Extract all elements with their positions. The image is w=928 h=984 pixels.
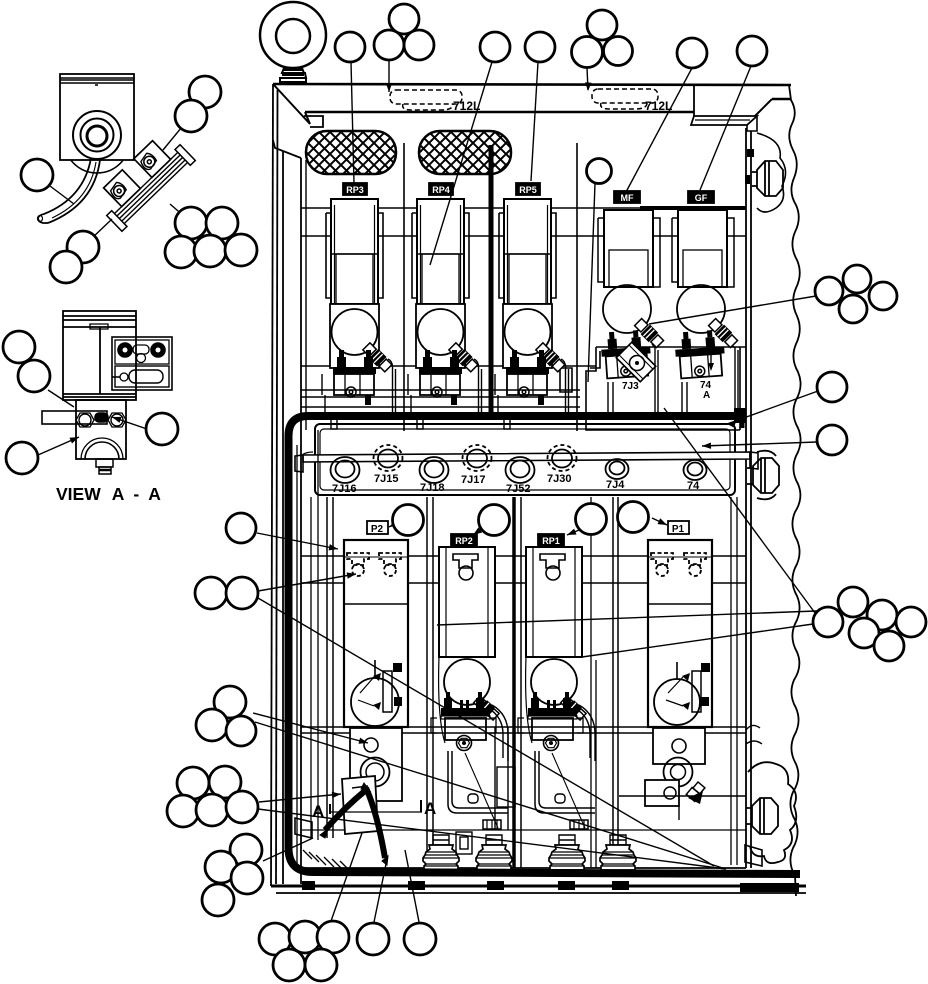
svg-text:7J18: 7J18 [420, 482, 444, 494]
svg-text:712L: 712L [645, 99, 672, 113]
svg-text:RP3: RP3 [346, 185, 364, 195]
svg-text:VIEWA-A: VIEWA-A [56, 484, 161, 504]
svg-text:RP2: RP2 [455, 536, 473, 546]
svg-text:A: A [703, 390, 710, 401]
svg-text:RP1: RP1 [542, 536, 560, 546]
svg-text:RP4: RP4 [432, 185, 450, 195]
svg-text:7J30: 7J30 [547, 473, 571, 485]
svg-text:GF: GF [695, 193, 708, 203]
svg-text:7J4: 7J4 [606, 479, 625, 491]
svg-text:7J16: 7J16 [332, 483, 356, 495]
svg-text:RP5: RP5 [519, 185, 537, 195]
svg-text:7J52: 7J52 [506, 483, 530, 495]
svg-text:P2: P2 [371, 524, 384, 535]
svg-text:P1: P1 [672, 524, 685, 535]
svg-text:74: 74 [687, 480, 700, 492]
svg-text:712L: 712L [453, 99, 480, 113]
svg-text:7J15: 7J15 [374, 473, 398, 485]
svg-text:MF: MF [621, 193, 634, 203]
svg-text:7J3: 7J3 [622, 381, 639, 392]
svg-text:7J17: 7J17 [461, 474, 485, 486]
svg-text:A: A [424, 799, 436, 818]
